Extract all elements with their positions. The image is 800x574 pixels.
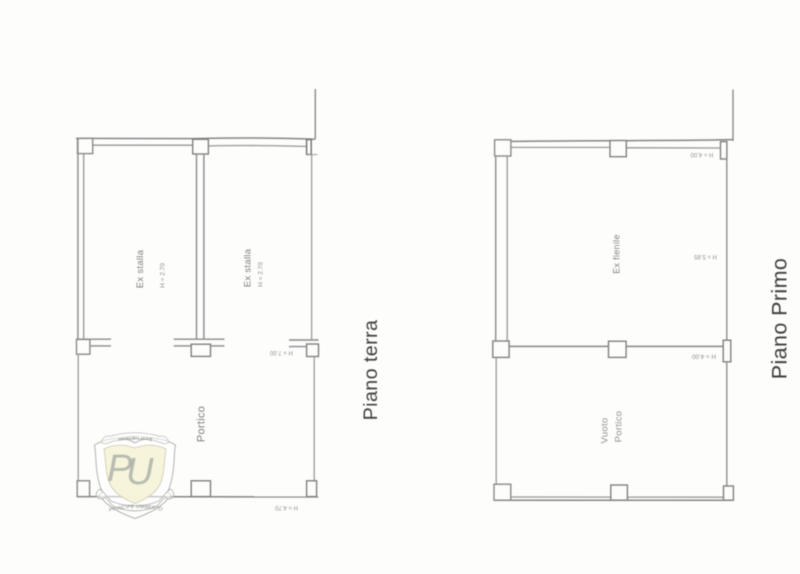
- svg-text:Portico: Portico: [614, 411, 625, 443]
- svg-text:Ex fienile: Ex fienile: [612, 234, 622, 274]
- svg-text:Piano terra: Piano terra: [360, 320, 382, 421]
- svg-text:Ex stalla: Ex stalla: [135, 249, 146, 288]
- svg-text:H = 7.00: H = 7.00: [269, 349, 293, 355]
- svg-text:H = 4.70: H = 4.70: [275, 504, 299, 510]
- svg-text:Ex stalla: Ex stalla: [243, 248, 254, 287]
- svg-text:H = 4.00: H = 4.00: [690, 151, 714, 157]
- svg-text:Piano Primo: Piano Primo: [768, 258, 792, 380]
- svg-text:H = 5.85: H = 5.85: [693, 253, 717, 259]
- svg-text:Portico: Portico: [196, 406, 208, 442]
- svg-text:H = 2.70: H = 2.70: [160, 263, 167, 288]
- svg-text:Vuoto: Vuoto: [600, 418, 611, 444]
- svg-text:U: U: [126, 451, 154, 493]
- svg-text:H = 2.70: H = 2.70: [258, 262, 265, 287]
- svg-text:H = 4.00: H = 4.00: [692, 352, 716, 359]
